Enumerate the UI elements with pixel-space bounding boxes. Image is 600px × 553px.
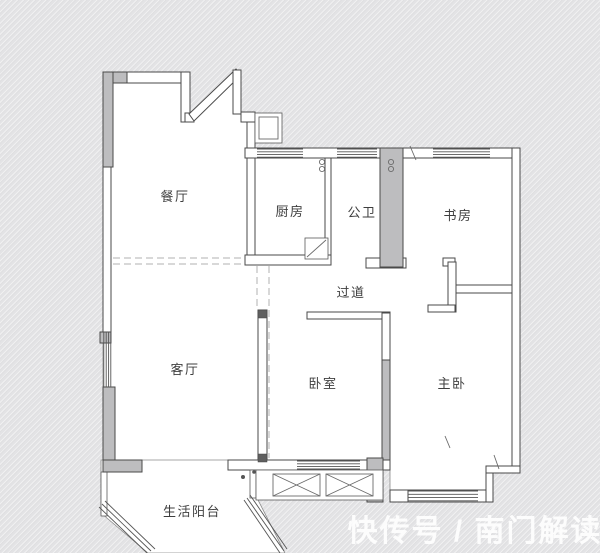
watermark: 快传号 / 南门解读 [347, 515, 600, 548]
equipment-platform [256, 470, 383, 500]
room-label-bedroom: 卧室 [308, 376, 337, 391]
room-label-balcony: 生活阳台 [163, 504, 221, 519]
room-label-study: 书房 [443, 208, 472, 223]
room-label-kitchen: 厨房 [275, 204, 304, 219]
room-label-master: 主卧 [437, 376, 466, 391]
room-label-hallway: 过道 [336, 285, 365, 300]
kitchen-door [305, 238, 328, 259]
room-label-living: 客厅 [170, 362, 199, 377]
room-label-dining: 餐厅 [160, 189, 189, 204]
room-label-bathroom: 公卫 [347, 205, 376, 220]
floor-plan-image: 餐厅 厨房 公卫 书房 过道 客厅 卧室 主卧 生活阳台 快传号 / 南门解读 [0, 0, 600, 553]
floor-plan: 餐厅 厨房 公卫 书房 过道 客厅 卧室 主卧 生活阳台 快传号 / 南门解读 [0, 0, 600, 553]
